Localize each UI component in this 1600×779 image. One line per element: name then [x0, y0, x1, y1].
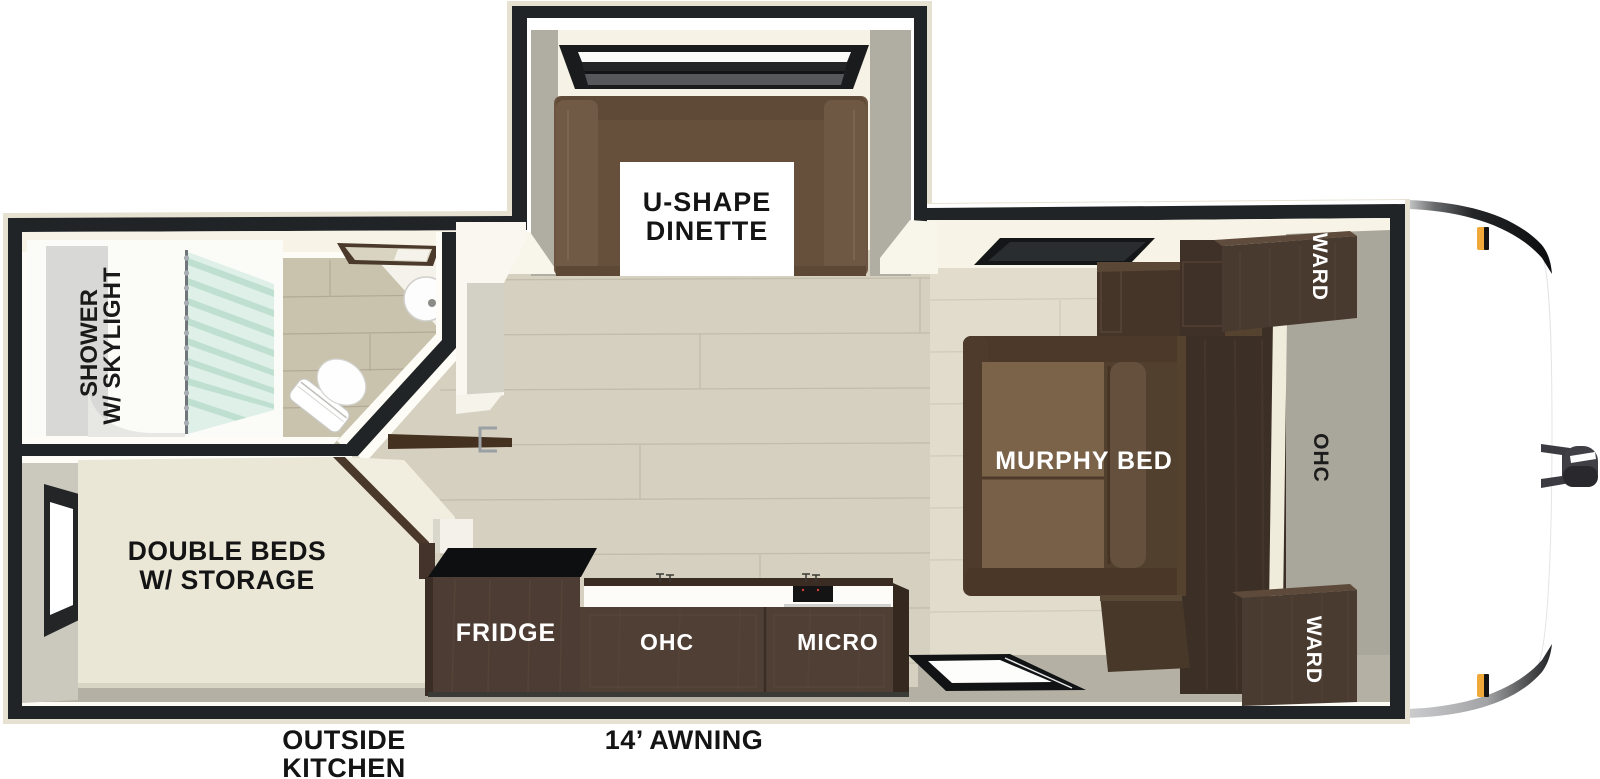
svg-text:OHC: OHC — [640, 629, 694, 655]
svg-text:KITCHEN: KITCHEN — [282, 753, 406, 779]
svg-text:FRIDGE: FRIDGE — [456, 619, 556, 647]
svg-text:W/ STORAGE: W/ STORAGE — [139, 565, 314, 595]
svg-text:DINETTE: DINETTE — [646, 216, 769, 246]
svg-text:W/ SKYLIGHT: W/ SKYLIGHT — [99, 267, 126, 425]
svg-text:MICRO: MICRO — [797, 629, 879, 655]
svg-text:DOUBLE BEDS: DOUBLE BEDS — [128, 536, 326, 566]
svg-text:WARD: WARD — [1302, 616, 1325, 684]
svg-text:WARD: WARD — [1308, 233, 1331, 301]
svg-text:U-SHAPE: U-SHAPE — [643, 187, 772, 217]
svg-text:OUTSIDE: OUTSIDE — [282, 725, 406, 755]
svg-text:OHC: OHC — [1309, 433, 1332, 483]
svg-text:MURPHY BED: MURPHY BED — [995, 447, 1173, 475]
svg-text:14’ AWNING: 14’ AWNING — [605, 725, 764, 755]
